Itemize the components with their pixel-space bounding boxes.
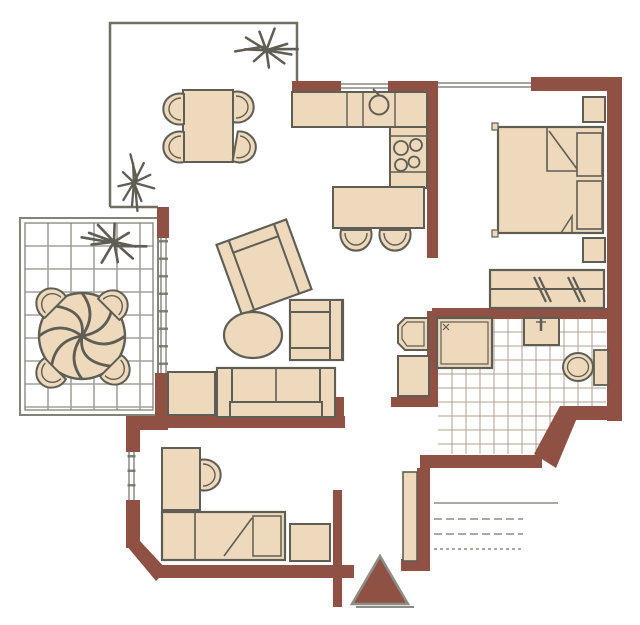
bedroom2-single-bed: [162, 512, 285, 560]
dining-chair-3: [233, 92, 254, 123]
wall-living-left: [155, 373, 168, 428]
bed1-post-bottom: [492, 230, 498, 237]
dining-table: [183, 90, 233, 162]
wall-bedroom2-left-lower: [126, 500, 140, 548]
nightstand-2: [583, 238, 605, 262]
bed1-post-top: [492, 123, 498, 130]
apartment-floor-plan: [0, 0, 640, 625]
coffee-table-oval: [224, 312, 282, 358]
wall-kitchen-top-right: [388, 81, 438, 92]
wall-hall-stub: [391, 397, 432, 407]
kitchen-island-table: [333, 187, 424, 228]
island-chair-1: [341, 230, 372, 251]
desk-chair: [200, 460, 221, 491]
entrance-triangle: [352, 556, 408, 604]
desk: [162, 448, 200, 510]
bed1-pillow-2: [577, 181, 602, 229]
dining-chair-2: [163, 132, 184, 163]
wall-kitchen-top-left: [292, 81, 341, 92]
wall-bathroom-bottom: [420, 455, 542, 468]
wall-bedroom2-left-upper: [126, 420, 140, 452]
nightstand-3: [290, 524, 330, 561]
plant-1: [233, 20, 301, 73]
armchair-2-back: [330, 300, 342, 360]
hall-table: [398, 356, 429, 396]
wall-bedroom2-corner-diagonal: [126, 541, 167, 581]
wall-entry-right: [417, 468, 430, 569]
dining-chair-1: [163, 94, 184, 125]
toilet-tank: [594, 350, 608, 385]
kitchen-counter-top: [292, 92, 427, 127]
entry-door-leaf: [403, 472, 417, 561]
wall-bedroom2-cross: [327, 565, 354, 578]
dining-chair-4: [233, 131, 259, 165]
wall-bedroom2-right: [333, 490, 342, 607]
wall-bedroom2-bottom: [154, 565, 340, 578]
sofa-back: [230, 402, 322, 417]
wall-right-outer: [607, 77, 622, 421]
wall-kitchen-divider: [427, 92, 438, 258]
side-table: [168, 372, 215, 415]
plant-2: [115, 153, 160, 213]
floor-plan-page: [0, 0, 640, 625]
bed1-pillow-1: [577, 133, 602, 176]
wall-terrace-door-stub: [157, 207, 169, 238]
island-chair-2: [380, 230, 411, 251]
nightstand-1: [583, 97, 605, 122]
